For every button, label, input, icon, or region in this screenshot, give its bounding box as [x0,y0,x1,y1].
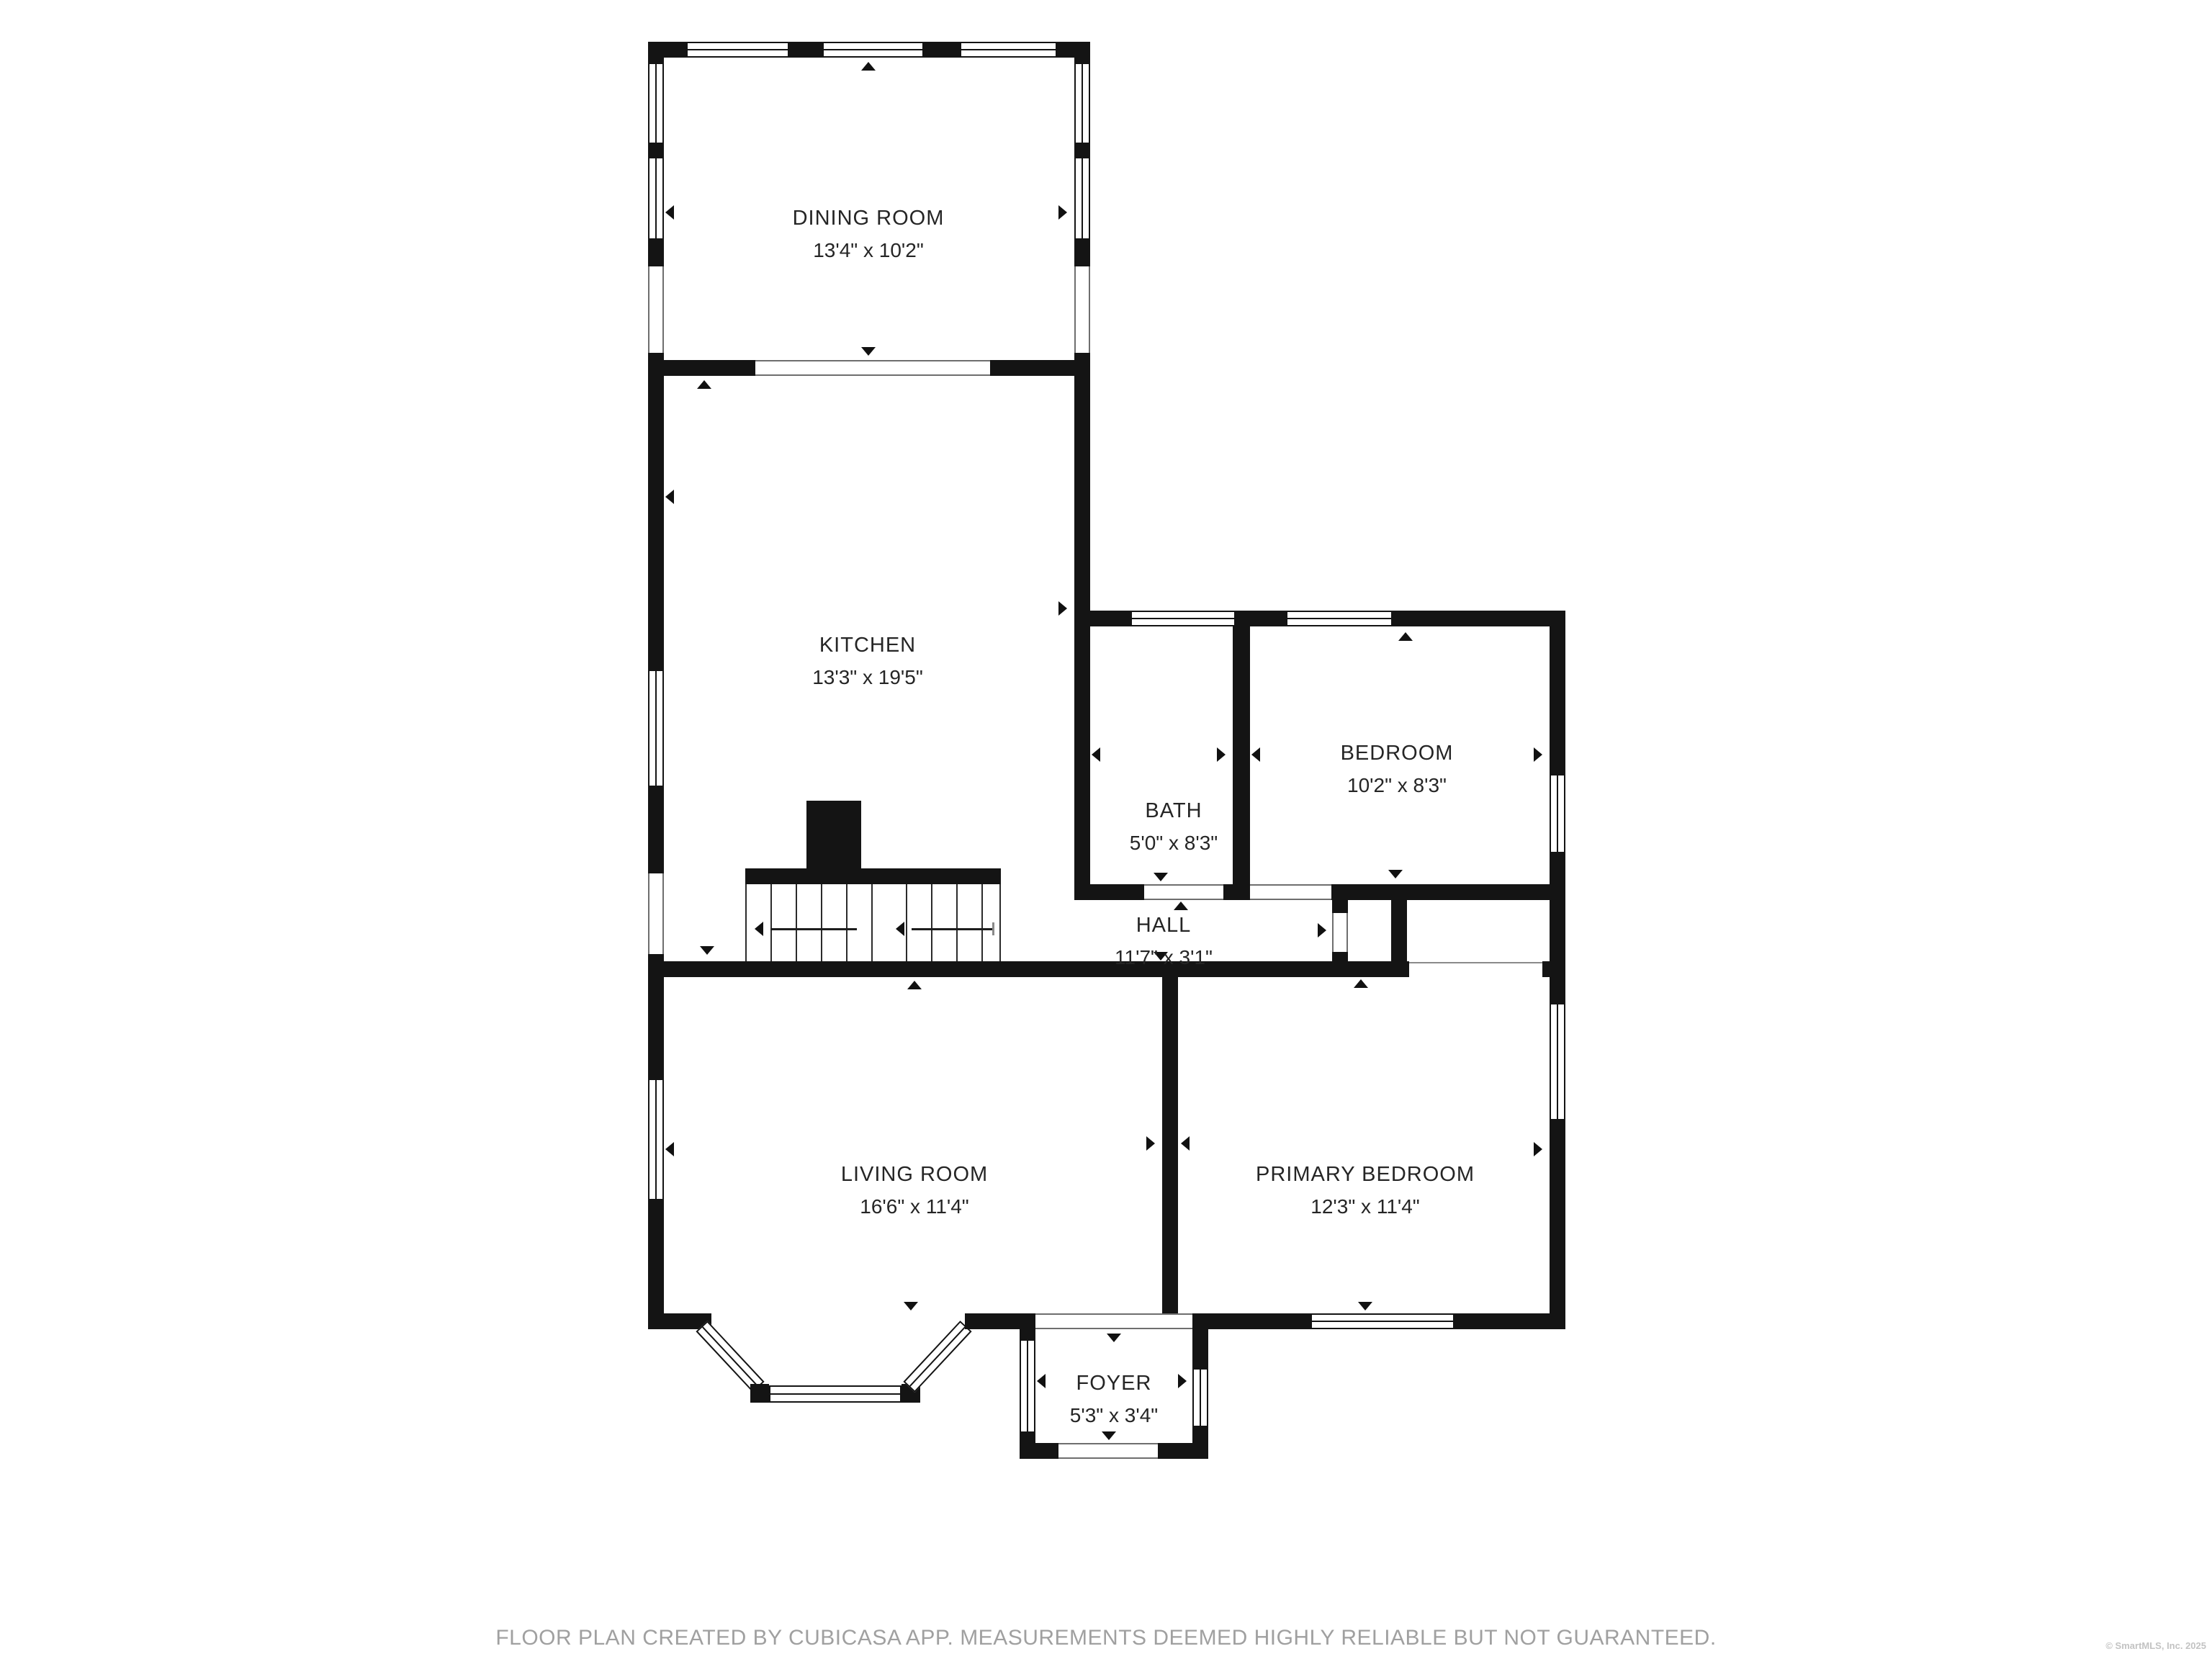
direction-marker [1037,1374,1046,1388]
direction-marker [1154,873,1168,881]
direction-marker [1251,747,1260,762]
wall-opening [648,873,664,954]
wall [1158,1443,1208,1459]
room-label-foyer: FOYER 5'3" x 3'4" [1070,1372,1158,1428]
room-dimensions: 13'4" x 10'2" [793,240,945,263]
direction-marker [1092,747,1100,762]
stair-tread [999,884,1001,961]
wall [1192,1329,1208,1368]
copyright-notice: © SmartMLS, Inc. 2025 [2105,1640,2206,1651]
wall [1236,611,1286,626]
window [1550,774,1565,853]
room-name: LIVING ROOM [841,1163,988,1187]
room-name: BATH [1130,799,1218,823]
direction-marker [1358,1302,1372,1310]
direction-marker [1534,747,1542,762]
room-name: HALL [1115,914,1213,938]
door-opening [1144,884,1223,900]
stair-arrow-icon [896,922,904,936]
door-opening [1332,913,1348,952]
wall [1074,240,1090,266]
direction-marker [665,1142,674,1156]
wall [1074,376,1090,900]
wall [1550,853,1565,1003]
window [1074,63,1090,144]
room-dimensions: 16'6" x 11'4" [841,1196,988,1219]
direction-marker [904,1302,918,1310]
wall [990,360,1090,376]
direction-marker [1102,1431,1116,1440]
wall-opening [648,266,664,353]
front-door-opening [1058,1443,1158,1459]
room-name: KITCHEN [812,634,923,657]
wall [789,42,822,58]
wall [648,144,664,157]
room-label-dining: DINING ROOM 13'4" x 10'2" [793,207,945,263]
stair-tread [821,884,822,961]
stair-arrow-icon [755,922,763,936]
wall-opening [1074,266,1090,353]
stair-tread [906,884,907,961]
room-label-bath: BATH 5'0" x 8'3" [1130,799,1218,855]
window [686,42,789,58]
wall [1550,611,1565,774]
room-label-kitchen: KITCHEN 13'3" x 19'5" [812,634,923,690]
window [1550,1003,1565,1120]
stair-tread [981,884,983,961]
bay-window [903,1321,971,1393]
wall [1233,626,1250,884]
wall [648,787,664,873]
wall [648,1200,664,1313]
stair-wall [745,868,1001,884]
wall [648,376,664,670]
wall [1455,1313,1565,1329]
stair-tread [931,884,932,961]
window [1130,611,1236,626]
room-dimensions: 10'2" x 8'3" [1341,775,1454,798]
room-name: FOYER [1070,1372,1158,1395]
room-label-living: LIVING ROOM 16'6" x 11'4" [841,1163,988,1219]
wall [1393,611,1565,626]
direction-marker [1318,923,1326,938]
window [1286,611,1393,626]
wall [1074,884,1144,900]
bay-window [696,1321,764,1393]
direction-marker [1217,747,1226,762]
stair-direction-line [770,928,857,930]
stair-tread [871,884,873,961]
window [648,1079,664,1200]
direction-marker [861,62,876,71]
stair-tread [956,884,958,961]
direction-marker [1146,1136,1155,1151]
direction-marker [1354,979,1368,988]
stair-line-end [992,922,994,935]
room-dimensions: 12'3" x 11'4" [1256,1196,1475,1219]
window [1074,157,1090,240]
wall [1074,611,1130,626]
window [822,42,924,58]
direction-marker [665,490,674,504]
direction-marker [1174,902,1188,910]
window [1020,1339,1035,1433]
stair-tread [796,884,797,961]
wall [1074,144,1090,157]
stair-tread [745,884,747,961]
direction-marker [1388,870,1403,878]
direction-marker [1181,1136,1190,1151]
room-name: BEDROOM [1341,742,1454,765]
wall [1223,884,1250,900]
room-dimensions: 13'3" x 19'5" [812,667,923,690]
wall [648,42,664,63]
stair-direction-line [912,928,992,930]
direction-marker [665,205,674,220]
door-opening [1250,884,1331,900]
direction-marker [907,981,922,989]
direction-marker [700,946,714,955]
bay-corner [750,1384,769,1403]
room-dimensions: 5'0" x 8'3" [1130,832,1218,855]
direction-marker [1107,1334,1121,1342]
room-label-primary: PRIMARY BEDROOM 12'3" x 11'4" [1256,1163,1475,1219]
direction-marker [1058,205,1067,220]
room-name: PRIMARY BEDROOM [1256,1163,1475,1187]
bay-window [769,1385,902,1403]
wall [1162,977,1178,1313]
room-dimensions: 11'7" x 3'1" [1115,947,1213,970]
wall [1020,1443,1058,1459]
direction-marker [1534,1142,1542,1156]
direction-marker [1178,1374,1187,1388]
wall [924,42,960,58]
window [1310,1313,1455,1329]
direction-marker [861,347,876,356]
room-dimensions: 5'3" x 3'4" [1070,1405,1158,1428]
wall [965,1313,1035,1329]
room-label-bedroom: BEDROOM 10'2" x 8'3" [1341,742,1454,798]
wall [1331,884,1565,900]
wall [1550,1120,1565,1329]
floor-plan: DINING ROOM 13'4" x 10'2" KITCHEN 13'3" … [0,0,2212,1659]
wall [648,240,664,266]
window [648,157,664,240]
room-name: DINING ROOM [793,207,945,230]
wall [1542,961,1565,977]
window [648,63,664,144]
stair-tread [770,884,772,961]
door-opening [1409,962,1542,963]
window [1192,1368,1208,1427]
window [960,42,1057,58]
stair-tread [846,884,848,961]
window [648,670,664,787]
wall [648,360,755,376]
door-opening [1035,1313,1192,1329]
wall [648,977,664,1079]
wall [1074,42,1090,63]
door-opening [755,360,990,376]
room-label-hall: HALL 11'7" x 3'1" [1115,914,1213,970]
footer-disclaimer: FLOOR PLAN CREATED BY CUBICASA APP. MEAS… [0,1626,2212,1650]
direction-marker [1058,601,1067,616]
wall [1192,1313,1310,1329]
direction-marker [697,380,711,389]
wall [1020,1329,1035,1339]
wall [1332,900,1348,913]
wall [648,961,1409,977]
direction-marker [1398,632,1413,641]
